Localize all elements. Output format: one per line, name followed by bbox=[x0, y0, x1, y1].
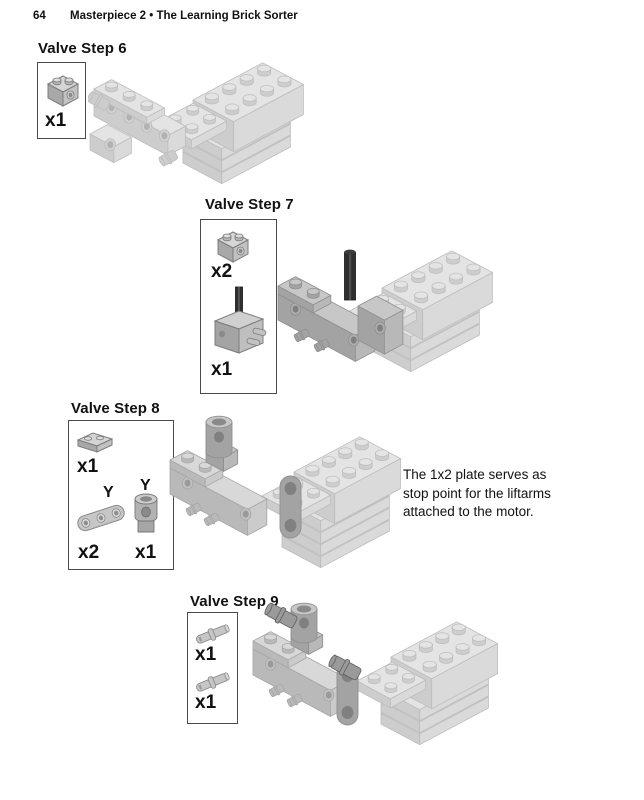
part-quantity: x1 bbox=[77, 457, 98, 476]
step-8-parts-box: x1 Y Y x2 x1 bbox=[68, 420, 174, 570]
step-7-parts-box: x2 x1 bbox=[200, 219, 277, 394]
step-8-note: The 1x2 plate serves as stop point for t… bbox=[403, 466, 551, 522]
plate-1x2-icon bbox=[73, 429, 117, 455]
step-6-parts-box: x1 bbox=[37, 62, 86, 139]
part-quantity: x1 bbox=[211, 360, 232, 379]
part-quantity: x1 bbox=[195, 645, 216, 664]
note-line: stop point for the liftarms bbox=[403, 485, 551, 504]
part-quantity: x1 bbox=[195, 693, 216, 712]
liftarm-icon bbox=[71, 499, 131, 537]
part-quantity: x1 bbox=[45, 111, 66, 130]
ball-socket-icon bbox=[129, 487, 163, 535]
technic-brick-1x2-icon bbox=[41, 71, 85, 109]
note-line: attached to the motor. bbox=[403, 503, 551, 522]
part-quantity: x2 bbox=[211, 262, 232, 281]
valve-step-9-assembly-illustration bbox=[233, 597, 505, 760]
valve-step-7-assembly-illustration bbox=[272, 240, 512, 392]
motor-block-with-axle-icon bbox=[205, 284, 273, 356]
valve-step-8-assembly-illustration bbox=[162, 404, 408, 582]
page-number: 64 bbox=[33, 10, 46, 22]
technic-brick-1x2-icon bbox=[211, 227, 255, 265]
step-9-parts-box: x1 x1 bbox=[187, 612, 238, 724]
step-6-title: Valve Step 6 bbox=[38, 40, 127, 57]
valve-step-6-assembly-illustration bbox=[88, 56, 333, 192]
page: { "page": { "number": "64", "title": "Ma… bbox=[0, 0, 644, 800]
step-7-title: Valve Step 7 bbox=[205, 196, 294, 213]
step-8-title: Valve Step 8 bbox=[71, 400, 160, 417]
part-quantity: x2 bbox=[78, 543, 99, 562]
part-quantity: x1 bbox=[135, 543, 156, 562]
note-line: The 1x2 plate serves as bbox=[403, 466, 551, 485]
book-title: Masterpiece 2 • The Learning Brick Sorte… bbox=[70, 10, 298, 22]
